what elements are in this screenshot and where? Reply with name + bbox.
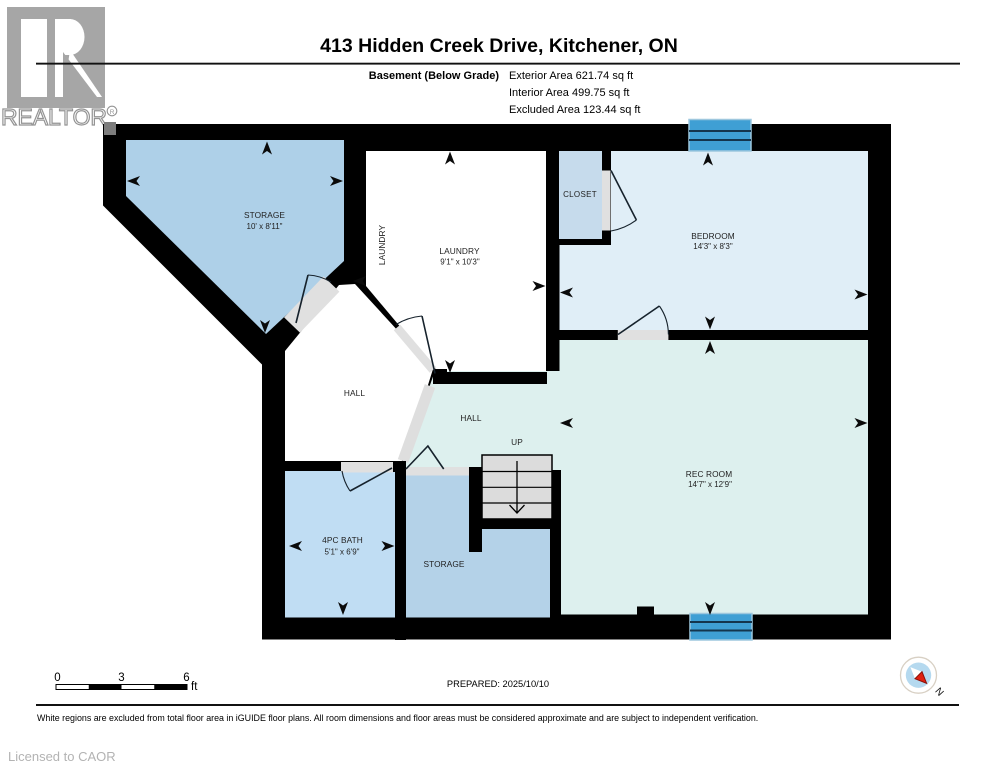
svg-text:0: 0	[54, 672, 60, 684]
svg-text:STORAGE: STORAGE	[244, 210, 285, 220]
svg-text:STORAGE: STORAGE	[423, 559, 464, 569]
svg-text:413 Hidden Creek Drive, Kitche: 413 Hidden Creek Drive, Kitchener, ON	[320, 35, 678, 57]
svg-text:Interior Area 499.75 sq ft: Interior Area 499.75 sq ft	[509, 87, 629, 99]
svg-text:HALL: HALL	[460, 413, 481, 423]
svg-text:LAUNDRY: LAUNDRY	[439, 246, 480, 256]
svg-text:UP: UP	[511, 437, 523, 447]
svg-text:Basement (Below Grade): Basement (Below Grade)	[369, 70, 500, 82]
svg-text:3: 3	[118, 672, 124, 684]
svg-text:R: R	[110, 109, 115, 116]
svg-text:Excluded Area 123.44 sq ft: Excluded Area 123.44 sq ft	[509, 104, 640, 116]
svg-text:Exterior Area 621.74 sq ft: Exterior Area 621.74 sq ft	[509, 70, 633, 82]
svg-text:BEDROOM: BEDROOM	[691, 231, 735, 241]
svg-text:White regions are excluded fro: White regions are excluded from total fl…	[37, 713, 758, 723]
svg-text:9'1" x 10'3": 9'1" x 10'3"	[440, 258, 480, 267]
svg-text:ft: ft	[191, 681, 198, 693]
svg-text:14'3" x 8'3": 14'3" x 8'3"	[693, 242, 733, 251]
svg-text:PREPARED: 2025/10/10: PREPARED: 2025/10/10	[447, 679, 549, 689]
svg-text:LAUNDRY: LAUNDRY	[377, 225, 387, 266]
svg-text:10' x 8'11": 10' x 8'11"	[247, 222, 283, 231]
svg-text:4PC BATH: 4PC BATH	[322, 535, 363, 545]
svg-text:14'7" x 12'9": 14'7" x 12'9"	[688, 480, 732, 489]
svg-text:5'1" x 6'9": 5'1" x 6'9"	[325, 548, 360, 557]
svg-text:REC ROOM: REC ROOM	[686, 469, 732, 479]
svg-text:6: 6	[183, 672, 189, 684]
svg-text:REALTOR: REALTOR	[1, 104, 108, 130]
svg-text:HALL: HALL	[344, 388, 365, 398]
svg-text:CLOSET: CLOSET	[563, 190, 597, 199]
svg-text:Licensed to CAOR: Licensed to CAOR	[8, 749, 116, 764]
